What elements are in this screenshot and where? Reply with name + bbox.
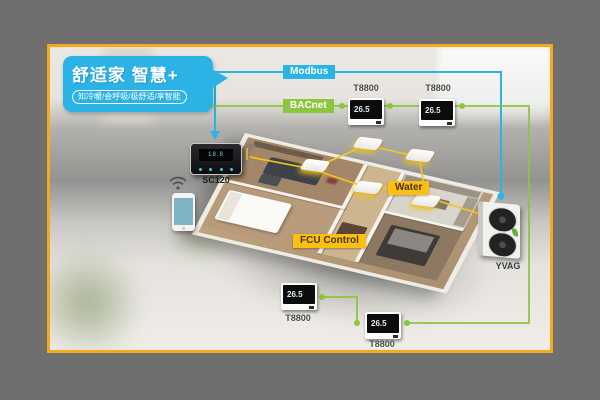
thermostat-logo bbox=[376, 121, 381, 124]
t8800-thermostat: 26.5 bbox=[419, 99, 455, 126]
headline-bubble: 舒适家 智慧+ 知冷暖/会呼吸/极舒适/享智能 bbox=[63, 56, 213, 112]
t8800-thermostat: 26.5 bbox=[281, 283, 317, 310]
background-plant bbox=[47, 243, 142, 353]
sc120-buttons bbox=[199, 168, 233, 171]
water-label: Water bbox=[388, 181, 429, 195]
headline-title: 舒适家 智慧+ bbox=[72, 61, 205, 86]
t8800-caption: T8800 bbox=[352, 339, 412, 349]
fcu-control-label: FCU Control bbox=[293, 234, 366, 248]
t8800-caption: T8800 bbox=[336, 83, 396, 93]
photo-frame: Modbus BACnet Water FCU Control T8800 26… bbox=[47, 44, 553, 353]
t8800-caption: T8800 bbox=[408, 83, 468, 93]
thermostat-screen: 26.5 bbox=[283, 285, 315, 304]
sc120-caption: SC120 bbox=[188, 175, 244, 185]
thermostat-screen: 26.5 bbox=[350, 100, 382, 119]
smartphone-home-button bbox=[182, 227, 185, 230]
modbus-label: Modbus bbox=[283, 65, 335, 79]
bacnet-label: BACnet bbox=[283, 99, 334, 113]
fan-icon bbox=[488, 231, 517, 259]
thermostat-logo bbox=[309, 306, 314, 309]
modbus-arrowhead bbox=[210, 131, 220, 140]
smartphone bbox=[172, 193, 195, 231]
leaf-icon bbox=[512, 228, 518, 237]
fcu-unit bbox=[404, 148, 435, 162]
thermostat-screen: 26.5 bbox=[367, 314, 399, 333]
marketing-image: Modbus BACnet Water FCU Control T8800 26… bbox=[0, 0, 600, 400]
smartphone-screen bbox=[174, 198, 193, 225]
wifi-icon bbox=[169, 176, 187, 190]
thermostat-logo bbox=[393, 335, 398, 338]
t8800-caption: T8800 bbox=[268, 313, 328, 323]
t8800-thermostat: 26.5 bbox=[348, 98, 384, 125]
sc120-controller: 18.8 bbox=[190, 143, 242, 175]
yvag-caption: YVAG bbox=[486, 261, 530, 271]
thermostat-logo bbox=[447, 122, 452, 125]
fcu-unit bbox=[352, 136, 383, 150]
headline-subtitle: 知冷暖/会呼吸/极舒适/享智能 bbox=[72, 90, 187, 104]
bubble-tail bbox=[211, 69, 228, 89]
thermostat-screen: 26.5 bbox=[421, 101, 453, 120]
t8800-thermostat: 26.5 bbox=[365, 312, 401, 339]
sc120-screen: 18.8 bbox=[199, 149, 233, 161]
yvag-outdoor-unit bbox=[478, 201, 520, 259]
